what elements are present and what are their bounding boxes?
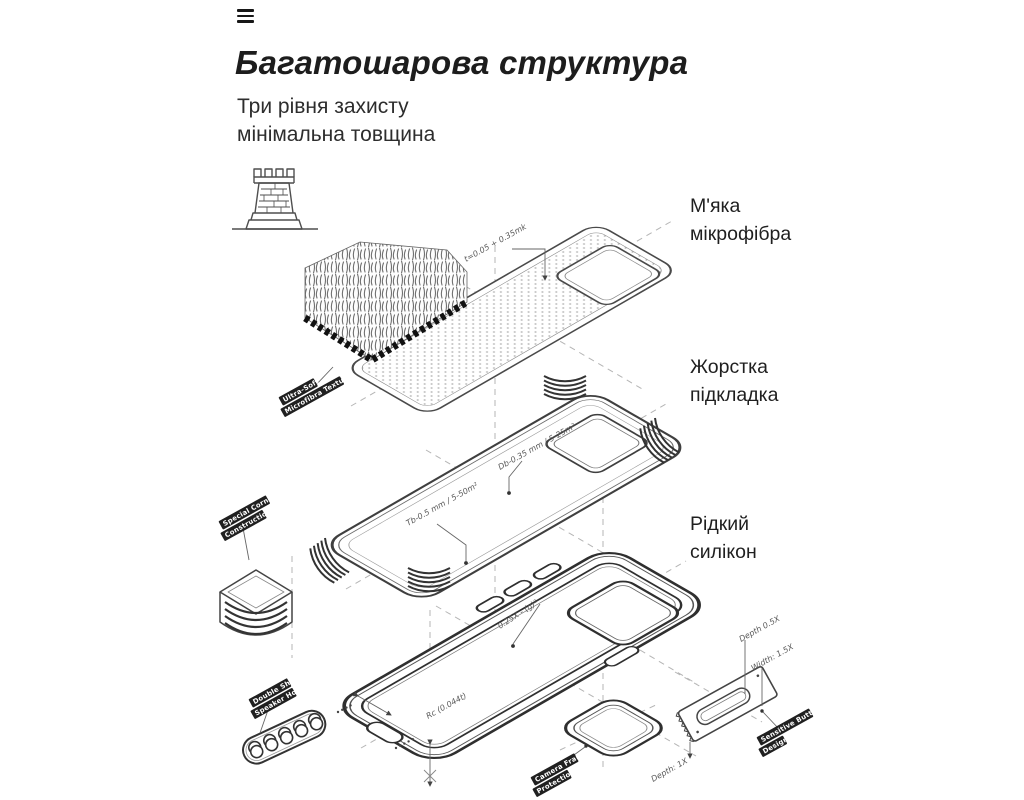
castle-tower-icon [232, 169, 318, 229]
detail-corner [220, 570, 292, 635]
detail-button [675, 666, 778, 744]
detail-camera-ring [558, 696, 669, 760]
annotation-camera-depth: Depth: 1X [650, 756, 690, 784]
badge-button: Sensitive Button Design [753, 703, 828, 757]
exploded-diagram: t=0.05 + 0.35mk Db-0.35 mm / 5-25m² Tb-0… [0, 0, 1024, 800]
annotation-button-width: Width: 1.5X [750, 642, 796, 673]
product-info-page: Багатошарова структура Три рівня захисту… [0, 0, 1024, 800]
badge-ultra-soft: Ultra-Soft Microfibra Texture [275, 362, 353, 418]
badge-camera: Camera Frame Protection [527, 748, 594, 798]
svg-text:Sensitive Button: Sensitive Button [760, 704, 823, 744]
badge-corner: Special Corner Construction [215, 491, 283, 541]
annotation-button-depth: Depth 0.5X [738, 614, 782, 644]
detail-speaker [239, 706, 330, 768]
badge-speaker: Double Shot Speaker Hole [245, 674, 305, 720]
